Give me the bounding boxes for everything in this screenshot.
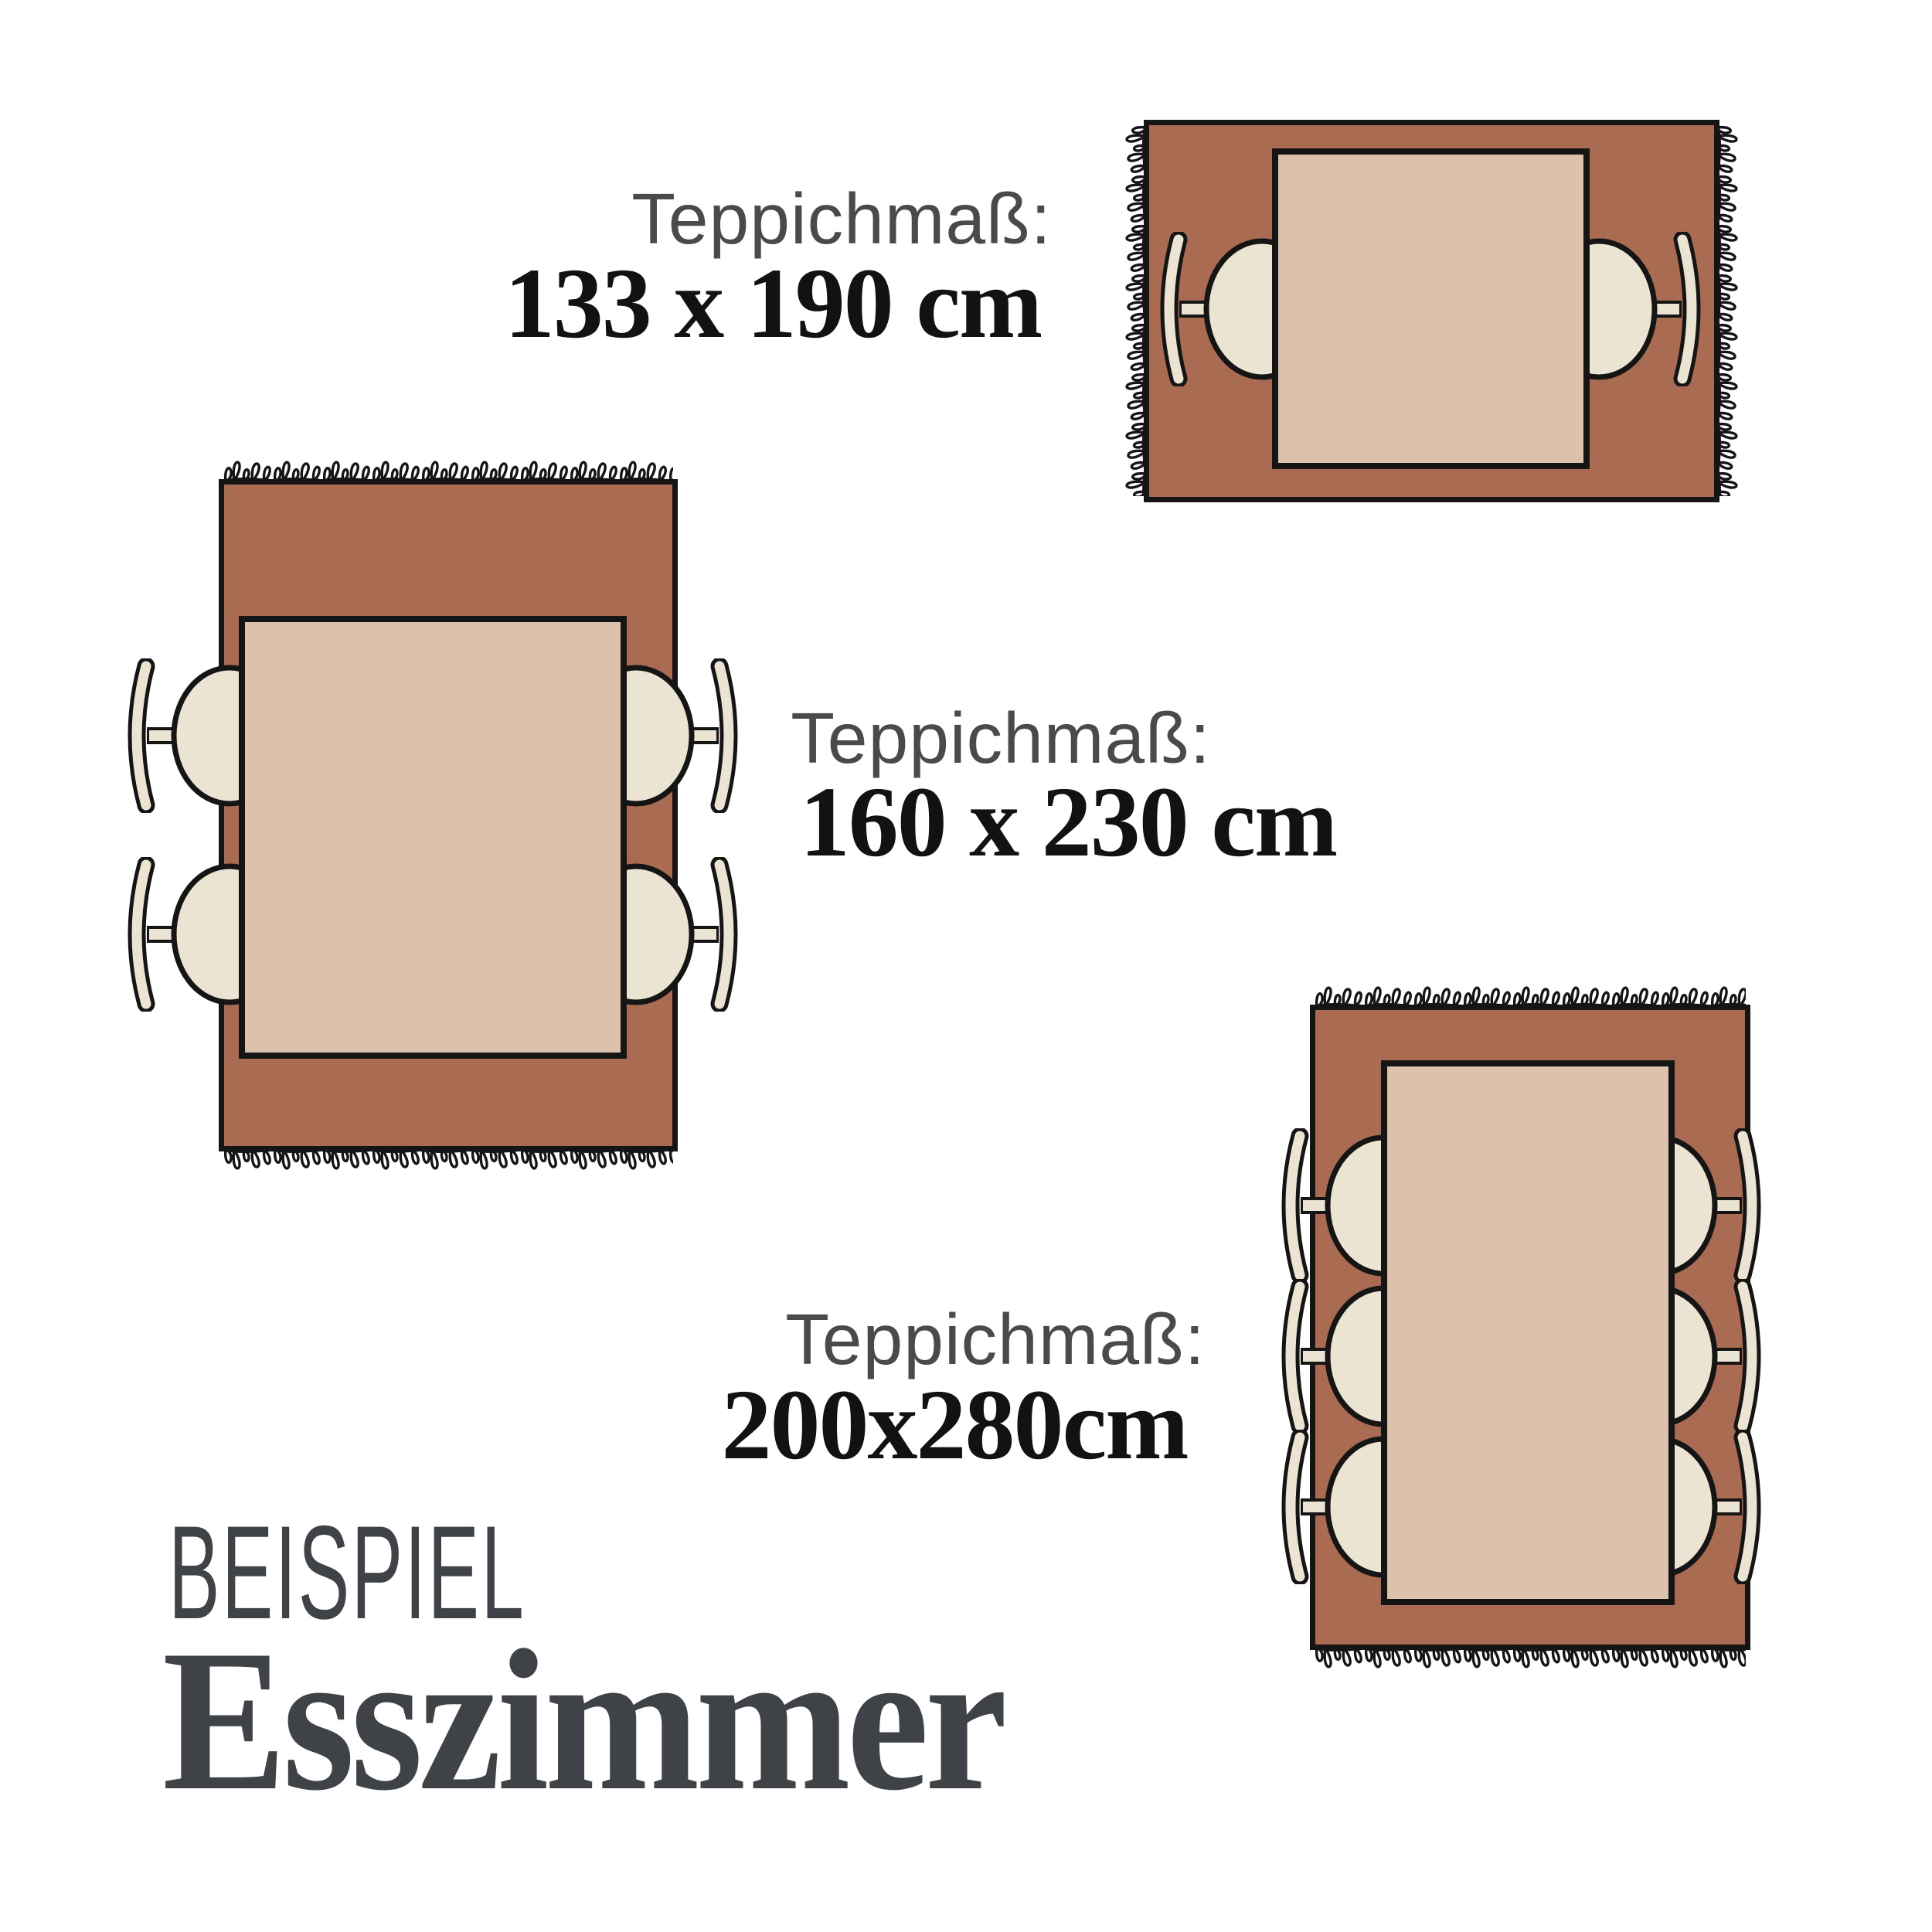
page-title: Esszimmer: [162, 1619, 1003, 1821]
rug1-fringe-left: [1120, 125, 1145, 496]
rug3-fringe-bottom: [1315, 1649, 1746, 1674]
dining-table-icon: [1381, 1060, 1675, 1605]
rug3-size-value: 200x280cm: [568, 1372, 1341, 1478]
rug2-fringe-top: [223, 455, 673, 480]
rug2-size-value: 160 x 230 cm: [682, 770, 1454, 876]
rug-size-guide-page: { "heading": { "eyebrow": "BEISPIEL", "t…: [0, 0, 1932, 1932]
rug1-size-label: Teppichmaß:: [455, 179, 1228, 258]
rug1-size-value: 133 x 190 cm: [386, 251, 1159, 357]
rug1-fringe-right: [1719, 125, 1743, 496]
dining-table-icon: [239, 616, 627, 1059]
rug2-fringe-bottom: [223, 1151, 673, 1175]
rug3-fringe-top: [1315, 981, 1746, 1005]
rug3-size-label: Teppichmaß:: [609, 1300, 1382, 1379]
dining-table-icon: [1272, 148, 1590, 469]
